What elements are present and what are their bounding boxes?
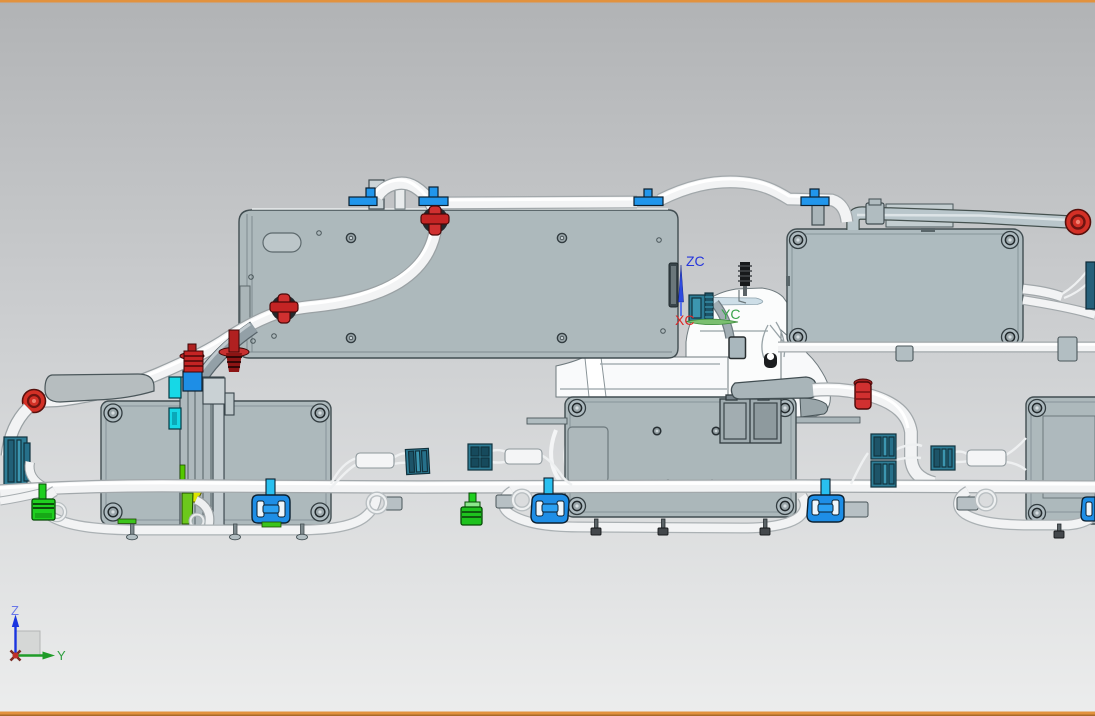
svg-text:Z: Z (11, 603, 19, 618)
svg-text:ZC: ZC (686, 253, 705, 269)
svg-text:Y: Y (57, 648, 66, 663)
svg-text:XC: XC (675, 312, 694, 328)
